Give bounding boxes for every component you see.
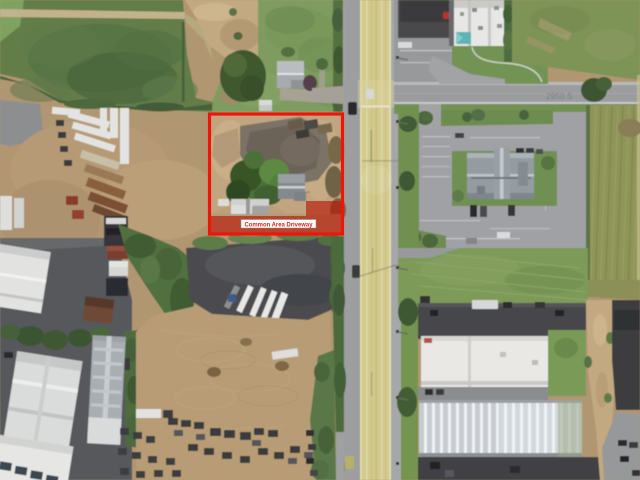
- svg-text:2950 S: 2950 S: [546, 92, 573, 101]
- svg-text:Common Area Driveway: Common Area Driveway: [245, 221, 314, 228]
